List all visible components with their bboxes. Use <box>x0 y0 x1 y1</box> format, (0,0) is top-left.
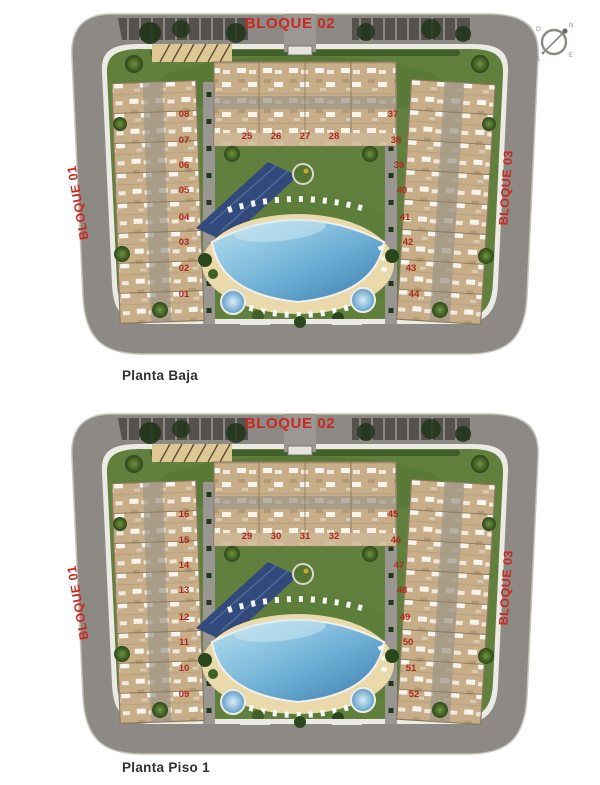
site-plan-planta-baja: BLOQUE 02 BLOQUE 01 BLOQUE 03 08 07 06 0… <box>0 4 600 360</box>
unit-number: 52 <box>409 689 420 700</box>
unit-number: 40 <box>397 185 408 196</box>
unit-number: 16 <box>179 509 190 520</box>
unit-number: 30 <box>271 531 282 542</box>
unit-number: 01 <box>179 289 190 300</box>
unit-number: 48 <box>397 585 408 596</box>
unit-number: 04 <box>179 212 190 223</box>
caption-planta-baja: Planta Baja <box>122 368 198 383</box>
unit-number: 38 <box>391 135 402 146</box>
unit-number: 25 <box>242 131 253 142</box>
unit-number: 32 <box>329 531 340 542</box>
caption-planta-piso-1: Planta Piso 1 <box>122 760 210 775</box>
unit-number: 41 <box>400 212 411 223</box>
unit-number: 02 <box>179 263 190 274</box>
label-bloque-02: BLOQUE 02 <box>245 415 335 432</box>
unit-number: 26 <box>271 131 282 142</box>
unit-number: 10 <box>179 663 190 674</box>
unit-number: 49 <box>400 612 411 623</box>
compass-o: O <box>536 27 541 33</box>
unit-number: 28 <box>329 131 340 142</box>
compass-s: S <box>536 57 540 63</box>
unit-number: 11 <box>179 637 190 648</box>
unit-number: 31 <box>300 531 311 542</box>
unit-number: 12 <box>179 612 190 623</box>
unit-number: 07 <box>179 135 190 146</box>
unit-number: 44 <box>409 289 420 300</box>
unit-number: 37 <box>388 109 399 120</box>
unit-number: 06 <box>179 160 190 171</box>
unit-number: 47 <box>394 560 405 571</box>
unit-number: 27 <box>300 131 311 142</box>
unit-number: 14 <box>179 560 190 571</box>
site-plan-planta-piso-1: BLOQUE 02 BLOQUE 01 BLOQUE 03 16 15 14 1… <box>0 404 600 760</box>
label-bloque-02: BLOQUE 02 <box>245 15 335 32</box>
unit-number: 43 <box>406 263 417 274</box>
unit-number: 39 <box>394 160 405 171</box>
unit-number: 08 <box>179 109 190 120</box>
unit-number: 51 <box>406 663 417 674</box>
unit-number: 13 <box>179 585 190 596</box>
unit-number: 29 <box>242 531 253 542</box>
unit-number: 15 <box>179 535 190 546</box>
unit-number: 42 <box>403 237 414 248</box>
unit-number: 46 <box>391 535 402 546</box>
unit-number: 09 <box>179 689 190 700</box>
unit-number: 05 <box>179 185 190 196</box>
unit-number: 50 <box>403 637 414 648</box>
unit-number: 03 <box>179 237 190 248</box>
compass-e: E <box>569 53 573 59</box>
compass-n: N <box>569 23 573 29</box>
compass-icon: N O E S <box>528 14 580 66</box>
unit-number: 45 <box>388 509 399 520</box>
